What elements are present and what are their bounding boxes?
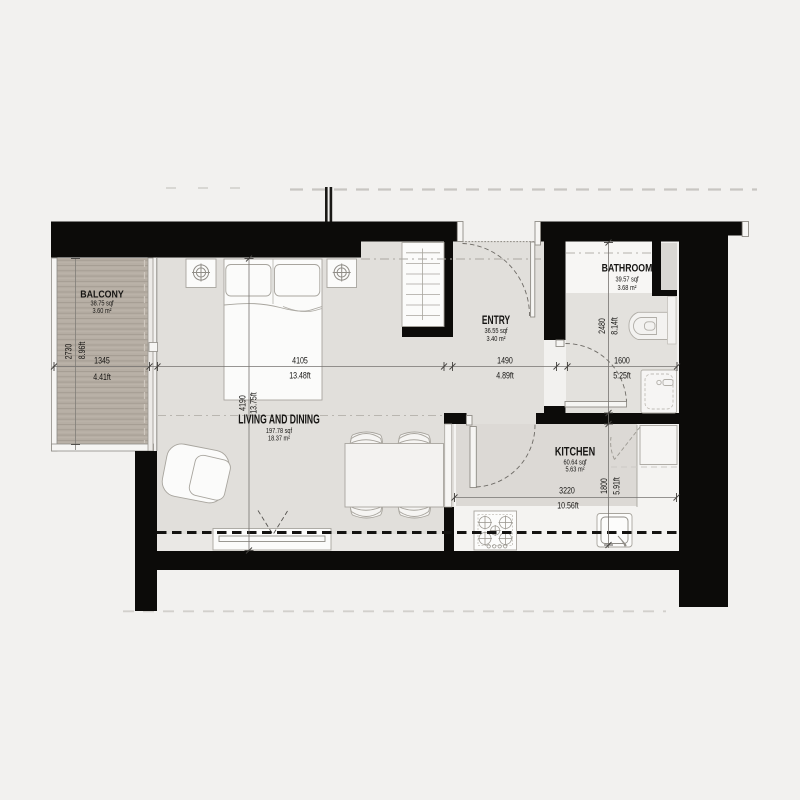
svg-text:BATHROOM: BATHROOM bbox=[602, 263, 653, 275]
svg-text:10.56ft: 10.56ft bbox=[557, 499, 579, 510]
svg-text:8.14ft: 8.14ft bbox=[608, 317, 619, 335]
svg-text:3.40 m²: 3.40 m² bbox=[487, 335, 507, 343]
svg-text:3.68 m²: 3.68 m² bbox=[618, 284, 638, 292]
svg-text:5.91ft: 5.91ft bbox=[610, 477, 621, 495]
svg-text:1490: 1490 bbox=[497, 354, 513, 365]
svg-text:5.63 m²: 5.63 m² bbox=[566, 466, 586, 474]
svg-text:36.55 sqf: 36.55 sqf bbox=[484, 327, 507, 335]
svg-text:4.89ft: 4.89ft bbox=[496, 369, 514, 380]
svg-text:KITCHEN: KITCHEN bbox=[555, 445, 595, 458]
svg-text:39.57 sqf: 39.57 sqf bbox=[615, 276, 638, 284]
svg-text:ENTRY: ENTRY bbox=[482, 315, 510, 328]
svg-text:2730: 2730 bbox=[62, 343, 73, 359]
svg-text:18.37 m²: 18.37 m² bbox=[268, 435, 291, 443]
svg-text:8.96ft: 8.96ft bbox=[76, 341, 87, 359]
svg-text:4105: 4105 bbox=[292, 354, 308, 365]
svg-text:2480: 2480 bbox=[596, 318, 607, 334]
svg-text:3220: 3220 bbox=[559, 484, 575, 495]
svg-text:1345: 1345 bbox=[94, 354, 110, 365]
svg-text:4.41ft: 4.41ft bbox=[93, 371, 111, 382]
svg-text:3.60 m²: 3.60 m² bbox=[93, 307, 113, 315]
svg-text:13.48ft: 13.48ft bbox=[289, 369, 311, 380]
svg-text:LIVING AND DINING: LIVING AND DINING bbox=[238, 413, 320, 427]
svg-text:1600: 1600 bbox=[614, 354, 630, 365]
svg-text:4190: 4190 bbox=[236, 395, 247, 411]
svg-text:5.25ft: 5.25ft bbox=[613, 369, 631, 380]
svg-text:13.75ft: 13.75ft bbox=[247, 392, 258, 414]
svg-text:1800: 1800 bbox=[598, 478, 609, 494]
